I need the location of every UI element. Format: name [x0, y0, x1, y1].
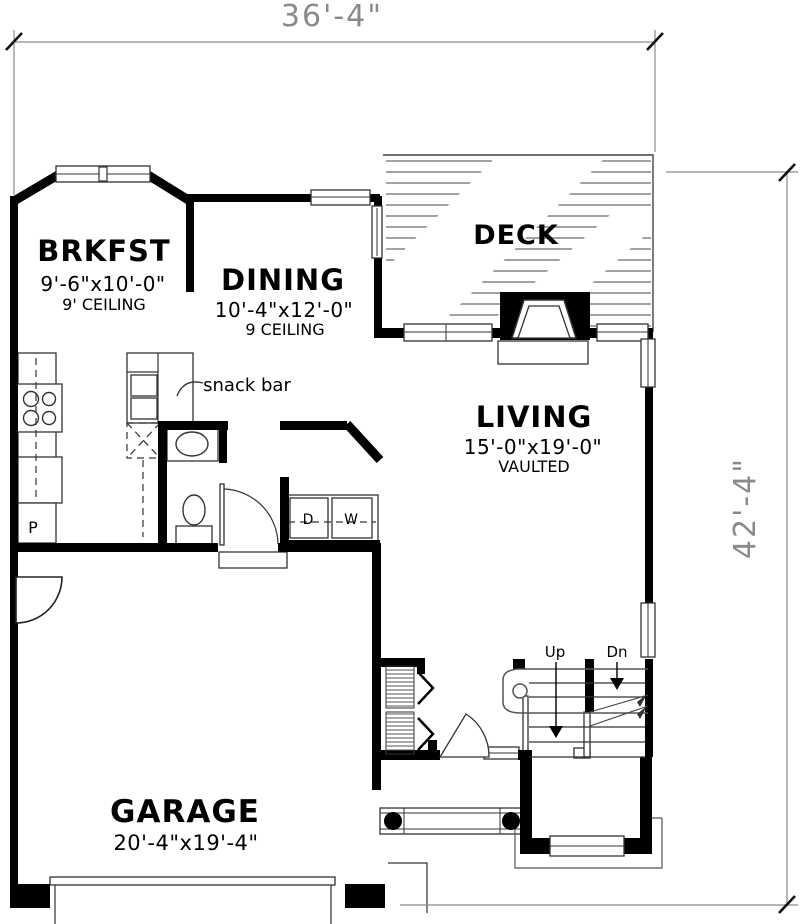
- room-size-living: 15'-0"x19'-0": [464, 435, 603, 459]
- stairs-down-label: Dn: [606, 643, 627, 661]
- right-dimension-label: 42'-4": [728, 457, 763, 559]
- down-arrowhead: [610, 678, 624, 690]
- stair-rail-line: [523, 696, 528, 757]
- closet-shelves: [386, 712, 414, 754]
- fireplace-hearth: [498, 341, 588, 364]
- room-label-garage: GARAGE: [110, 794, 260, 830]
- porch-post: [384, 812, 402, 830]
- room-ceiling-brkfst: 9' CEILING: [62, 295, 146, 314]
- fridge-box: [131, 375, 157, 396]
- bay-window-mullion: [99, 167, 107, 181]
- garage-door-header: [50, 877, 335, 885]
- washer-label: W: [344, 512, 358, 528]
- dimension-ticks: [6, 33, 795, 913]
- room-size-brkfst: 9'-6"x10'-0": [40, 272, 165, 296]
- dryer-label: D: [303, 512, 314, 528]
- closet-shelves: [386, 666, 414, 708]
- floor-plan: 36'-4" 42'-4" BRKFST 9'-6"x10'-0" 9' CEI…: [0, 0, 800, 924]
- closet-chevrons: [418, 672, 433, 750]
- top-dimension-label: 36'-4": [281, 0, 383, 34]
- vanity-sink: [176, 432, 208, 456]
- toilet-bowl: [183, 495, 205, 525]
- stair-newel: [513, 684, 527, 698]
- fridge-box: [131, 398, 157, 419]
- stairs-up-label: Up: [545, 643, 566, 661]
- pantry-label: P: [28, 518, 38, 537]
- bath-door-leaf: [220, 484, 224, 545]
- room-label-dining: DINING: [221, 263, 345, 297]
- room-label-living: LIVING: [476, 400, 593, 434]
- porch-post: [502, 812, 520, 830]
- room-note-living: VAULTED: [498, 457, 570, 476]
- stair-wall-line: [584, 712, 590, 757]
- kitchen-appliance: [18, 457, 62, 503]
- dishwasher-x: [127, 423, 160, 458]
- hall-door: [440, 714, 489, 757]
- range: [16, 384, 62, 432]
- floor-plan-drawing: 36'-4" 42'-4" BRKFST 9'-6"x10'-0" 9' CEI…: [0, 0, 800, 924]
- room-size-dining: 10'-4"x12'-0": [215, 298, 354, 322]
- snack-bar-label: snack bar: [203, 375, 291, 396]
- garage-service-door: [16, 577, 62, 623]
- winder-lines: [590, 695, 648, 726]
- toilet-tank: [176, 526, 212, 544]
- garage-step: [219, 552, 287, 568]
- bath-door-arc: [224, 489, 278, 544]
- up-arrowhead: [549, 726, 563, 738]
- room-label-deck: DECK: [473, 220, 559, 251]
- room-size-garage: 20'-4"x19'-4": [113, 831, 258, 855]
- room-label-brkfst: BRKFST: [37, 234, 170, 268]
- room-ceiling-dining: 9 CEILING: [245, 320, 324, 339]
